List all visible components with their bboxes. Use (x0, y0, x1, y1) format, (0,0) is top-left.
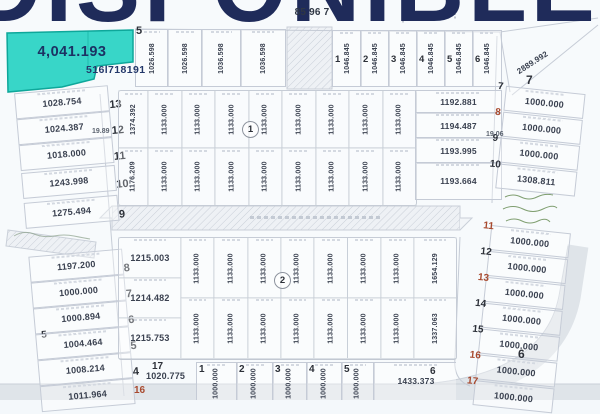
lot-area-label: 1000.894 (61, 311, 101, 324)
corner-lot-number: 7 (526, 73, 533, 87)
lot-area-label: 1000.000 (504, 286, 544, 300)
lot-area-label: 1133.000 (362, 161, 369, 191)
lot-number: 4 (132, 366, 139, 378)
lot-area-label: 1654.129 (431, 253, 438, 284)
lot: 1133.000 (314, 298, 347, 358)
lot-area-label: 1000.000 (354, 362, 361, 400)
lot-area-label: 1036.598 (218, 43, 225, 74)
lot-number: 2 (239, 364, 245, 375)
lot-area-label: 1133.000 (294, 313, 301, 343)
lot: 1654.129 (414, 238, 456, 298)
road-microtext (250, 216, 380, 219)
lot: 1337.063 (414, 298, 456, 358)
block-6-label: 6 (518, 347, 525, 361)
highlighted-lot-number: 5 (136, 25, 142, 37)
lot-area-label: 1133.000 (362, 104, 369, 134)
lot: 1026.598 (167, 29, 203, 87)
highlighted-lot-shape (7, 30, 133, 92)
lot-area-label: 1000.000 (519, 147, 559, 161)
lot-area-label: 1024.387 (44, 121, 84, 134)
lot: 1133.000 (249, 148, 283, 205)
lot-area-label: 1133.000 (195, 161, 202, 191)
lot-area-label: 1133.000 (396, 104, 403, 134)
lot-area-label: 1308.811 (517, 173, 556, 187)
lot: 1133.000 (348, 298, 381, 358)
lot: 1133.000 (281, 298, 314, 358)
bottom-west-red-number: 16 (134, 385, 145, 396)
lot-area-label: 1018.000 (47, 147, 87, 160)
lot-number: 5 (447, 54, 452, 65)
lot: 1133.000 (248, 298, 281, 358)
lot-area-label: 1275.494 (52, 205, 92, 218)
lot-area-label: 1046.845 (428, 43, 435, 74)
lot: 1215.003 (119, 238, 181, 278)
lot-area-label: 1243.998 (49, 175, 89, 188)
lot: 1133.000 (349, 91, 383, 148)
block-2-label: 2 (274, 272, 291, 289)
lot: 1133.000 (248, 238, 281, 298)
lot-area-label: 1046.845 (484, 43, 491, 74)
lot-area-label: 1004.464 (63, 337, 103, 350)
lot-area-label: 1000.000 (494, 390, 534, 404)
wide-lot-area: 1433.373 (386, 376, 446, 386)
lot: 1193.995 (415, 137, 502, 164)
lot-number: 3 (275, 364, 281, 375)
lot: 1133.000 (282, 148, 316, 205)
lot-area-label: 1374.392 (130, 104, 137, 135)
lot-area-label: 1133.000 (329, 161, 336, 191)
block-1-grid: 1374.3921133.0001133.0001133.0001133.000… (118, 90, 417, 206)
lot-area-label: 1046.845 (344, 43, 351, 74)
lot-area-label: 1133.000 (262, 104, 269, 134)
lot-area-label: 1133.000 (394, 253, 401, 283)
lot: 1133.000 (181, 238, 214, 298)
lot: 1176.209 (119, 148, 148, 205)
lot: 1133.000 (383, 148, 417, 205)
lot: 1133.000 (215, 91, 249, 148)
lot: 1036.598 (201, 29, 242, 87)
lot: 1036.598 (240, 29, 286, 87)
lot: 1133.000 (348, 238, 381, 298)
lot: 1133.000 (215, 148, 249, 205)
lot-area-label: 1133.000 (228, 161, 235, 191)
lot-number: 15 (472, 324, 484, 336)
lot: 1133.000 (181, 298, 214, 358)
lot-number: 11 (483, 220, 495, 232)
lot-area-label: 1337.063 (431, 313, 438, 344)
lot: 1133.000 (182, 91, 216, 148)
lot-area-label: 1000.000 (320, 362, 327, 400)
lot-area-label: 1046.845 (372, 43, 379, 74)
lot-number: 12 (480, 246, 492, 258)
lot-number: 5 (344, 364, 350, 375)
lot-area-label: 1133.000 (394, 313, 401, 343)
lot-area-label: 1133.000 (361, 253, 368, 283)
lot-number: 9 (119, 208, 126, 220)
wide-lot-number: 6 (430, 366, 436, 377)
bottom-lot-row: 11000.00021000.00031000.00041000.0005100… (196, 362, 456, 400)
lot: 1215.753 (119, 318, 181, 358)
lot-area-label: 1133.000 (329, 104, 336, 134)
lot-area-label: 1133.000 (295, 104, 302, 134)
lot-area-label: 1000.000 (524, 95, 564, 109)
lot-area-label: 1133.000 (227, 253, 234, 283)
lot: 1192.881 (415, 90, 502, 114)
lot-area-label: 1133.000 (294, 253, 301, 283)
lot-area-label: 1193.664 (440, 176, 477, 186)
lot-area-label: 1000.000 (507, 260, 547, 274)
lot-area-label: 1193.995 (440, 146, 477, 156)
lot: 1133.000 (316, 91, 350, 148)
top-road (287, 27, 332, 89)
lot-area-label: 1046.845 (456, 43, 463, 74)
lot-area-label: 1194.487 (440, 121, 477, 131)
lot-area-label: 1197.200 (57, 259, 96, 272)
lot: 1133.000 (349, 148, 383, 205)
lot-area-label: 1133.000 (262, 161, 269, 191)
lot-number: 16 (469, 349, 481, 361)
lot-area-label: 1133.000 (194, 253, 201, 283)
lot-area-label: 1000.000 (59, 285, 99, 298)
lot-area-label: 1046.845 (400, 43, 407, 74)
lot-area-label: 1008.214 (65, 363, 105, 376)
contact-number: 516l718191 (86, 64, 145, 76)
lot-area-label: 1000.000 (522, 121, 562, 135)
lot-area-label: 1133.000 (261, 313, 268, 343)
lot: 1214.482 (119, 278, 181, 318)
lot: 1133.000 (249, 91, 283, 148)
lot-area-label: 1026.598 (181, 43, 188, 74)
lot-area-label: 1028.754 (42, 96, 82, 109)
lot-number: 8 (495, 107, 502, 119)
lot-area-label: 1000.000 (251, 362, 258, 400)
lot-area-label: 1133.000 (161, 161, 168, 191)
lot: 1133.000 (214, 298, 247, 358)
lot-area-label: 1026.598 (148, 43, 155, 74)
lot-number: 10 (489, 159, 501, 171)
lot-area-label: 1000.000 (213, 362, 220, 400)
lot: 1133.000 (381, 238, 414, 298)
top-left-lots: 1026.5981026.5981036.5981036.598 (135, 29, 285, 87)
lot-area-label: 1176.209 (130, 161, 137, 191)
lot-area-label: 1133.000 (228, 104, 235, 134)
lot-area-label: 1133.000 (361, 313, 368, 343)
lot-number: 4 (309, 364, 315, 375)
lot-area-label: 1000.000 (286, 362, 293, 400)
lot-area-label: 1036.598 (259, 43, 266, 74)
lot-number: 14 (475, 298, 487, 310)
lot: 1133.000 (214, 238, 247, 298)
lot: 1374.392 (119, 91, 148, 148)
road-width-label-left: 19.89 (92, 128, 110, 135)
lot-number: 1 (199, 364, 205, 375)
lot: 1275.494 (24, 195, 120, 229)
lot-number: 1 (335, 54, 340, 65)
lot-number: 6 (475, 54, 480, 65)
lot: 1026.598 (135, 29, 169, 87)
lot-number: 3 (391, 54, 396, 65)
lot-area-label: 1133.000 (161, 104, 168, 134)
plat-map: DISPONIBLE 85 96 7 4,041.193 5 516l71819… (0, 0, 600, 400)
lot: 1133.000 (383, 91, 417, 148)
lot: 1133.000 (282, 91, 316, 148)
lot-area-label: 1133.000 (396, 161, 403, 191)
lot-area-label: 1133.000 (295, 161, 302, 191)
highlighted-lot-area: 4,041.193 (18, 44, 126, 60)
lot-number: 7 (497, 81, 504, 93)
lot-area-label: 1215.003 (130, 253, 169, 263)
lot-area-label: 1000.000 (502, 312, 542, 326)
lot-number: 17 (466, 375, 478, 387)
lot-area-label: 1000.000 (496, 364, 536, 378)
lot: 1133.000 (148, 91, 182, 148)
bottom-west-area: 1020.775 (146, 371, 185, 381)
lot: 1133.000 (182, 148, 216, 205)
lot-area-label: 1133.000 (261, 253, 268, 283)
lot-area-label: 1133.000 (327, 313, 334, 343)
lot-area-label: 1000.000 (510, 235, 550, 249)
top-right-lots: 1046.84511046.84521046.84531046.84541046… (332, 30, 500, 87)
road-width-label-right: 19.06 (486, 131, 504, 138)
block-2-grid: 1215.0031214.4821215.7531133.0001133.000… (118, 237, 457, 360)
block-1-label: 1 (242, 121, 259, 138)
lot: 1133.000 (281, 238, 314, 298)
lot-area-label: 1133.000 (227, 313, 234, 343)
lot-area-label: 1192.881 (440, 97, 477, 107)
lot-area-label: 1133.000 (195, 104, 202, 134)
lot-number: 13 (477, 272, 489, 284)
lot-area-label: 1215.753 (130, 333, 169, 343)
lot-area-label: 1214.482 (130, 293, 169, 303)
top-boundary-label: 85 96 7 (277, 7, 347, 18)
lot: 1133.000 (314, 238, 347, 298)
lot-area-label: 1133.000 (327, 253, 334, 283)
lot-area-label: 1133.000 (194, 313, 201, 343)
lot: 1243.998 (21, 165, 117, 199)
lot-number: 2 (363, 54, 368, 65)
lot: 1133.000 (316, 148, 350, 205)
lot: 1133.000 (148, 148, 182, 205)
lot: 1133.000 (381, 298, 414, 358)
lot-number: 4 (419, 54, 424, 65)
